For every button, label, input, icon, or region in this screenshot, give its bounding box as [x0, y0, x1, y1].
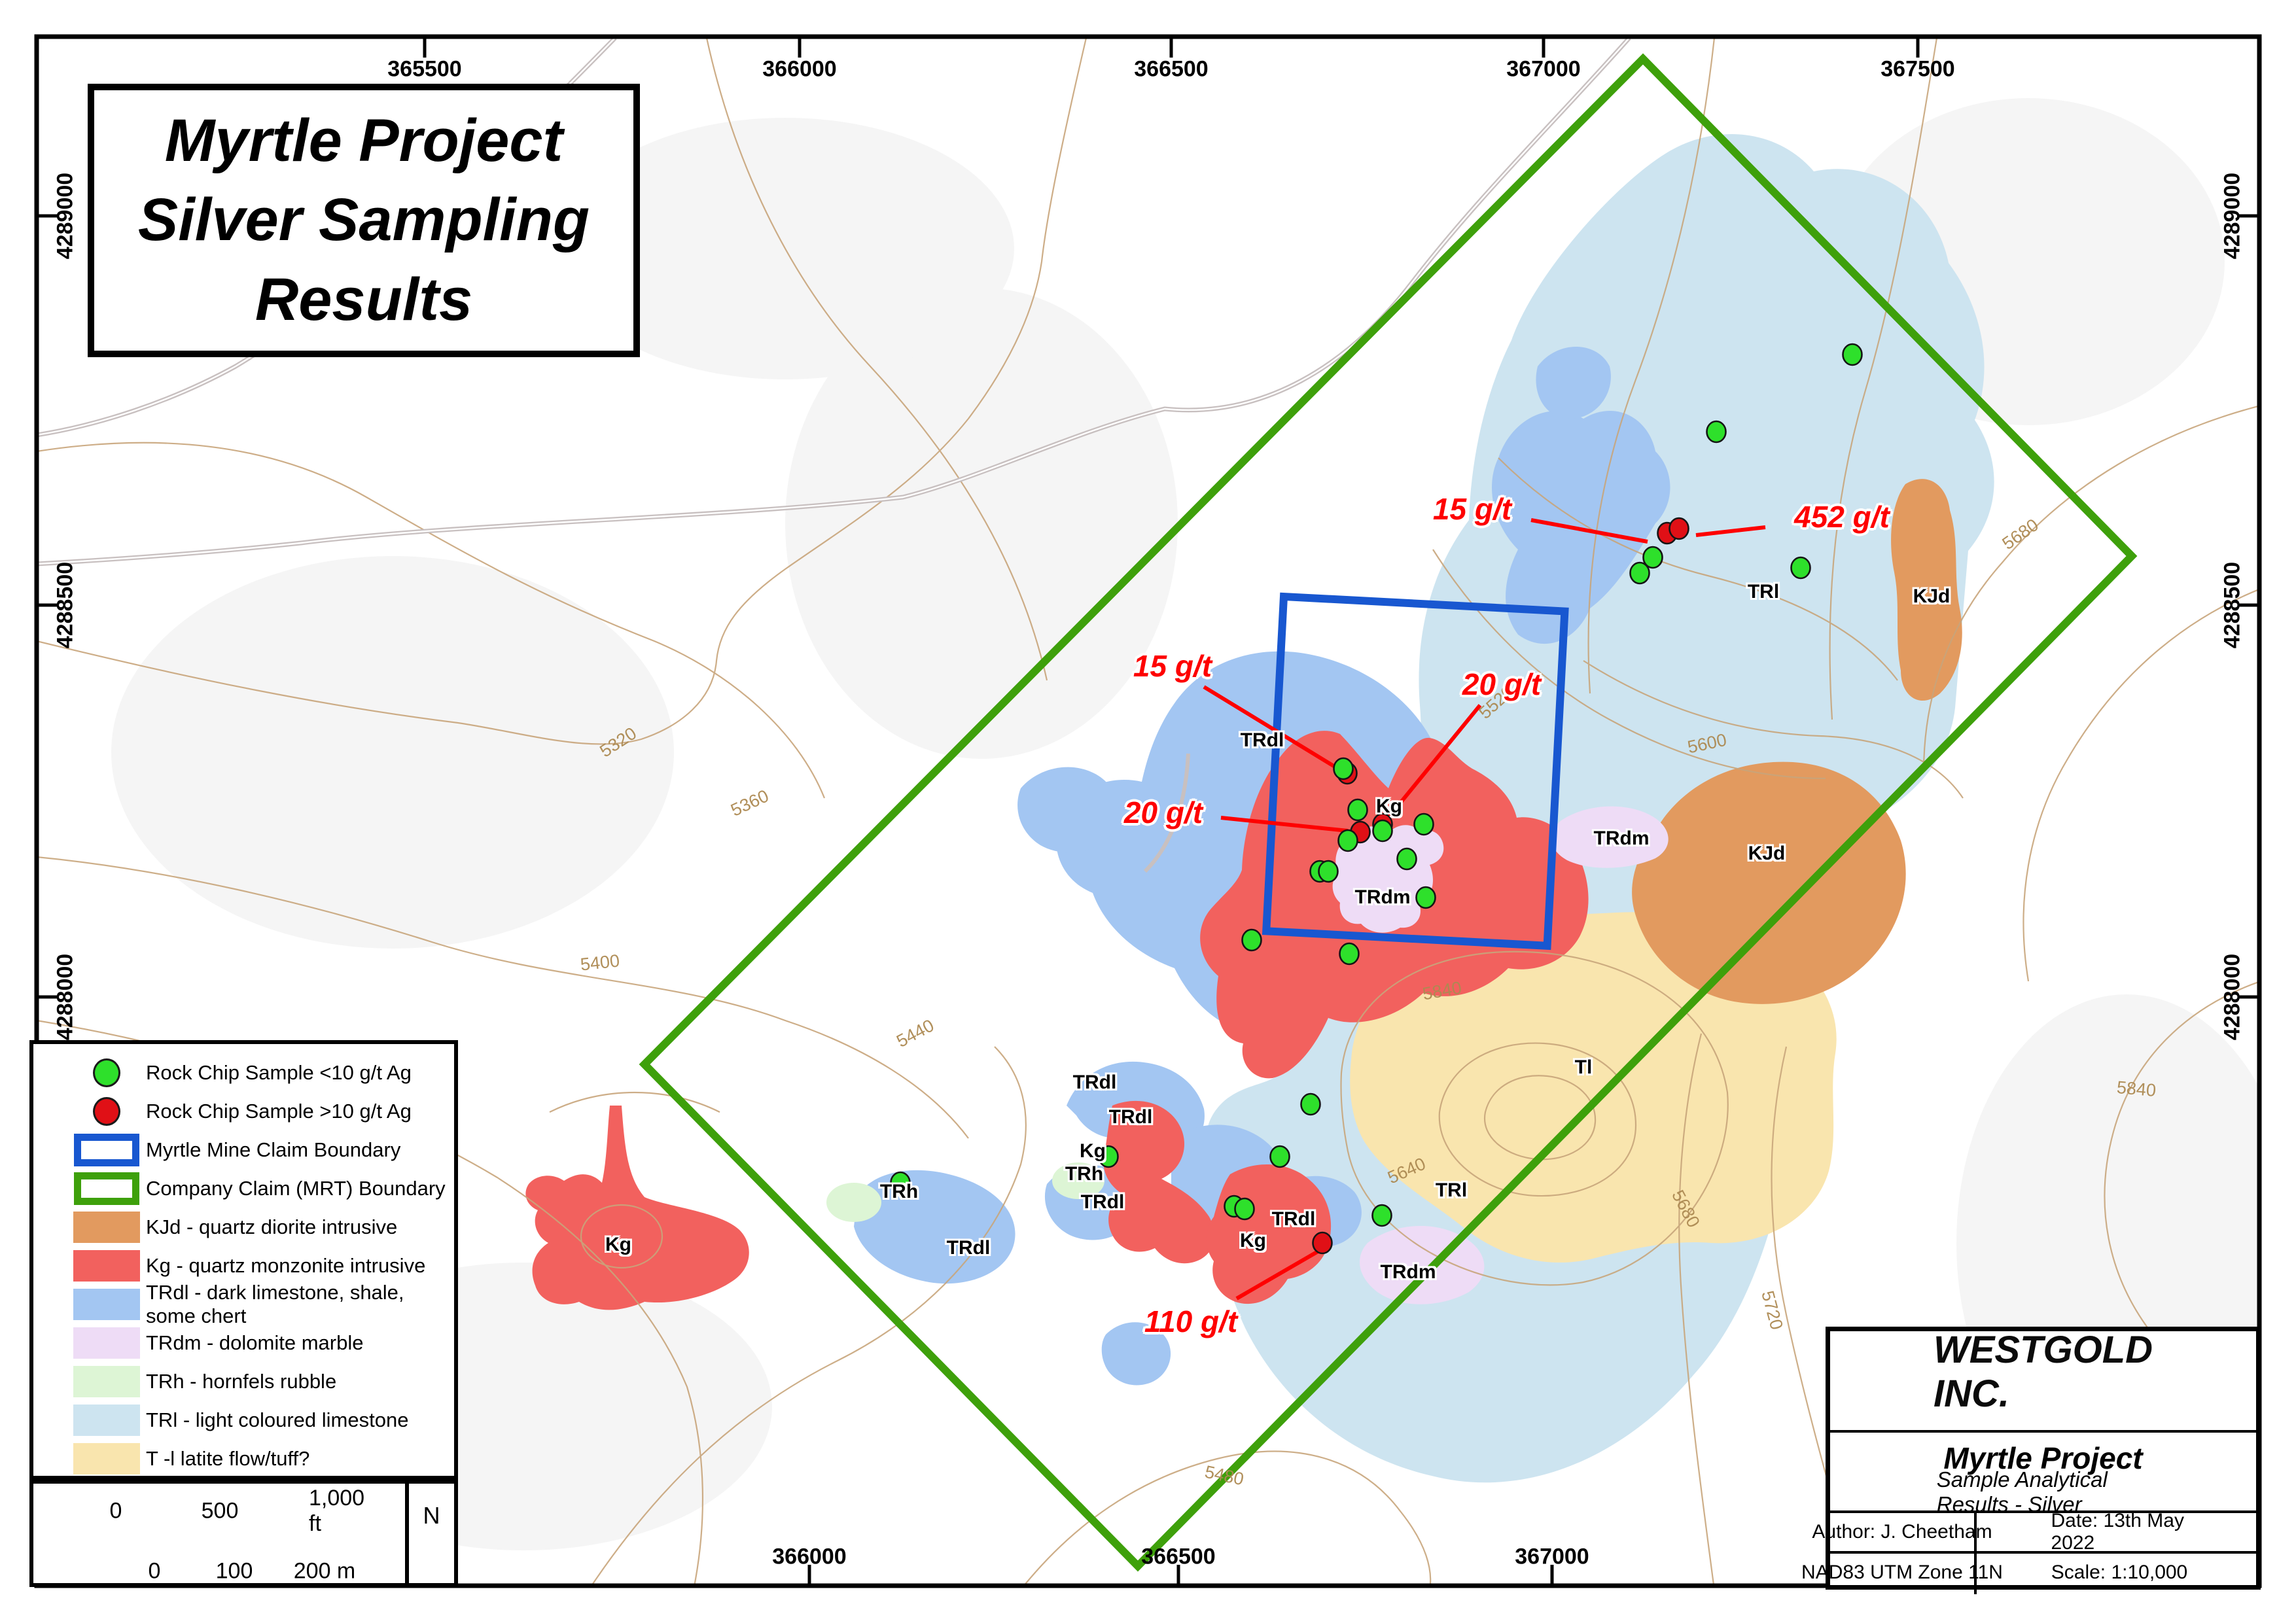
- unit-label-kjd: KJd: [1748, 843, 1786, 865]
- legend: Rock Chip Sample <10 g/t AgRock Chip Sam…: [29, 1040, 458, 1480]
- legend-swatch-fill-kg: [73, 1250, 140, 1282]
- scalebar-label: 500: [202, 1499, 239, 1524]
- scalebar-label: 100: [216, 1559, 253, 1584]
- rock-chip-sample-high: [1670, 518, 1689, 539]
- scalebar-label: 1,000 ft: [309, 1486, 373, 1537]
- title-block-divider: [1830, 1430, 2256, 1433]
- grid-label-top: 366500: [1134, 57, 1208, 82]
- grid-label-top: 365500: [387, 57, 461, 82]
- scalebar-label: 0: [149, 1559, 161, 1584]
- contour-label: 5400: [580, 951, 621, 975]
- legend-item: Kg - quartz monzonite intrusive: [33, 1246, 454, 1285]
- title-block: WESTGOLD INC. Myrtle Project Sample Anal…: [1826, 1327, 2261, 1590]
- map-title-line3: Results: [255, 260, 472, 340]
- grid-label-left: 4288500: [53, 562, 79, 648]
- unit-label-trdl: TRdl: [1272, 1208, 1316, 1230]
- rock-chip-sample-low: [1415, 814, 1434, 835]
- legend-swatch-rect-green: [74, 1172, 139, 1205]
- map-title-line2: Silver Sampling: [138, 181, 590, 260]
- legend-swatch-fill-trl: [73, 1405, 140, 1436]
- rock-chip-sample-low: [1301, 1094, 1320, 1115]
- legend-swatch-fill-tl: [73, 1443, 140, 1475]
- rock-chip-sample-low: [1340, 943, 1359, 964]
- rock-chip-sample-low: [1631, 563, 1650, 584]
- date-field: Date: 13th May 2022: [2051, 1510, 2188, 1554]
- unit-label-kg: Kg: [1080, 1140, 1106, 1162]
- legend-label: TRh - hornfels rubble: [146, 1370, 336, 1393]
- legend-item: Rock Chip Sample <10 g/t Ag: [33, 1053, 454, 1092]
- unit-label-kg: Kg: [1240, 1230, 1266, 1252]
- scalebar-label: 200 m: [294, 1559, 356, 1584]
- legend-label: Rock Chip Sample <10 g/t Ag: [146, 1061, 412, 1085]
- legend-item: T -l latite flow/tuff?: [33, 1439, 454, 1478]
- unit-label-trdl: TRdl: [1081, 1191, 1125, 1213]
- scalebar-label: 0: [110, 1499, 122, 1524]
- rock-chip-sample-low: [1373, 820, 1392, 841]
- unit-label-kg: Kg: [605, 1234, 631, 1256]
- rock-chip-sample-low: [1235, 1198, 1254, 1219]
- north-label: N: [423, 1502, 440, 1529]
- grid-label-top: 366000: [762, 57, 836, 82]
- grid-label-left: 4288000: [53, 954, 79, 1040]
- sample-grade-annotation: 15 g/t: [1133, 648, 1212, 684]
- unit-label-trdl: TRdl: [1109, 1106, 1153, 1128]
- scale-bar-box: 05001,000 ft0100200 m: [29, 1480, 409, 1587]
- rock-chip-sample-low: [1373, 1205, 1392, 1226]
- legend-item: TRh - hornfels rubble: [33, 1362, 454, 1401]
- rock-chip-sample-low: [1319, 861, 1338, 882]
- rock-chip-sample-low: [1792, 557, 1810, 578]
- unit-label-trdl: TRdl: [1241, 729, 1284, 752]
- legend-swatch-fill-trh: [73, 1366, 140, 1397]
- sample-grade-annotation: 15 g/t: [1433, 491, 1511, 527]
- contour-label: 5840: [2116, 1077, 2157, 1101]
- legend-swatch-fill-kjd: [73, 1212, 140, 1243]
- legend-label: Rock Chip Sample >10 g/t Ag: [146, 1100, 412, 1123]
- legend-label: KJd - quartz diorite intrusive: [146, 1215, 397, 1239]
- legend-label: Myrtle Mine Claim Boundary: [146, 1138, 400, 1162]
- rock-chip-sample-low: [1334, 758, 1353, 779]
- legend-item: Rock Chip Sample >10 g/t Ag: [33, 1092, 454, 1130]
- unit-label-trdm: TRdm: [1355, 886, 1411, 909]
- north-box: N: [405, 1480, 458, 1587]
- unit-label-kg: Kg: [1376, 795, 1402, 818]
- unit-label-trdl: TRdl: [1073, 1072, 1117, 1094]
- unit-label-trdm: TRdm: [1594, 828, 1650, 850]
- grid-label-right: 4288500: [2220, 562, 2246, 648]
- legend-swatch-rect-blue: [74, 1134, 139, 1166]
- author-field: Author: J. Cheetham: [1812, 1521, 1992, 1543]
- sample-grade-annotation: 20 g/t: [1462, 667, 1541, 702]
- legend-label: TRdm - dolomite marble: [146, 1331, 363, 1355]
- rock-chip-sample-low: [1843, 344, 1862, 365]
- legend-swatch-dot-green: [93, 1058, 120, 1087]
- unit-label-kjd: KJd: [1913, 585, 1951, 608]
- unit-label-trl: TRl: [1748, 581, 1779, 603]
- rock-chip-sample-high: [1313, 1232, 1332, 1253]
- grid-label-bottom: 366000: [772, 1544, 846, 1570]
- map-sheet: Myrtle Project Silver Sampling Results R…: [0, 0, 2296, 1623]
- scale-field: Scale: 1:10,000: [2051, 1562, 2188, 1584]
- grid-label-left: 4289000: [53, 173, 79, 259]
- grid-label-top: 367500: [1881, 57, 1954, 82]
- legend-swatch-fill-trdm: [73, 1327, 140, 1359]
- legend-label: Kg - quartz monzonite intrusive: [146, 1254, 425, 1278]
- grid-label-bottom: 367000: [1515, 1544, 1589, 1570]
- rock-chip-sample-low: [1707, 421, 1726, 442]
- unit-label-trh: TRh: [1065, 1163, 1103, 1185]
- legend-item: TRdl - dark limestone, shale, some chert: [33, 1285, 454, 1323]
- legend-item: TRl - light coloured limestone: [33, 1401, 454, 1439]
- rock-chip-sample-low: [1417, 887, 1436, 908]
- sample-grade-annotation: 452 g/t: [1794, 499, 1890, 534]
- title-block-divider: [1830, 1551, 2256, 1554]
- rock-chip-sample-low: [1349, 799, 1368, 820]
- unit-label-trdl: TRdl: [947, 1237, 991, 1259]
- company-name: WESTGOLD INC.: [1934, 1328, 2153, 1416]
- grid-label-top: 367000: [1506, 57, 1580, 82]
- legend-swatch-fill-trdl: [73, 1289, 140, 1320]
- map-title-box: Myrtle Project Silver Sampling Results: [88, 84, 640, 357]
- legend-item: Company Claim (MRT) Boundary: [33, 1169, 454, 1208]
- sample-grade-annotation: 20 g/t: [1124, 795, 1203, 830]
- grid-label-bottom: 366500: [1141, 1544, 1215, 1570]
- sample-grade-annotation: 110 g/t: [1144, 1304, 1237, 1339]
- rock-chip-sample-low: [1271, 1146, 1290, 1167]
- legend-label: TRl - light coloured limestone: [146, 1408, 408, 1432]
- map-title-line1: Myrtle Project: [165, 101, 563, 181]
- legend-label: TRdl - dark limestone, shale, some chert: [146, 1281, 454, 1328]
- legend-swatch-dot-red: [93, 1097, 120, 1126]
- datum-field: NAD83 UTM Zone 11N: [1801, 1562, 2003, 1584]
- rock-chip-sample-low: [1339, 830, 1358, 851]
- rock-chip-sample-low: [1398, 848, 1417, 869]
- unit-label-trdm: TRdm: [1381, 1261, 1436, 1283]
- grid-label-right: 4289000: [2220, 173, 2246, 259]
- grid-label-right: 4288000: [2220, 954, 2246, 1040]
- legend-label: T -l latite flow/tuff?: [146, 1447, 309, 1471]
- unit-label-trh: TRh: [880, 1181, 918, 1203]
- legend-label: Company Claim (MRT) Boundary: [146, 1177, 446, 1200]
- legend-item: TRdm - dolomite marble: [33, 1323, 454, 1362]
- legend-item: Myrtle Mine Claim Boundary: [33, 1130, 454, 1169]
- unit-label-tl: Tl: [1575, 1056, 1593, 1079]
- unit-label-trl: TRl: [1436, 1179, 1467, 1202]
- rock-chip-sample-low: [1243, 930, 1262, 951]
- legend-item: KJd - quartz diorite intrusive: [33, 1208, 454, 1246]
